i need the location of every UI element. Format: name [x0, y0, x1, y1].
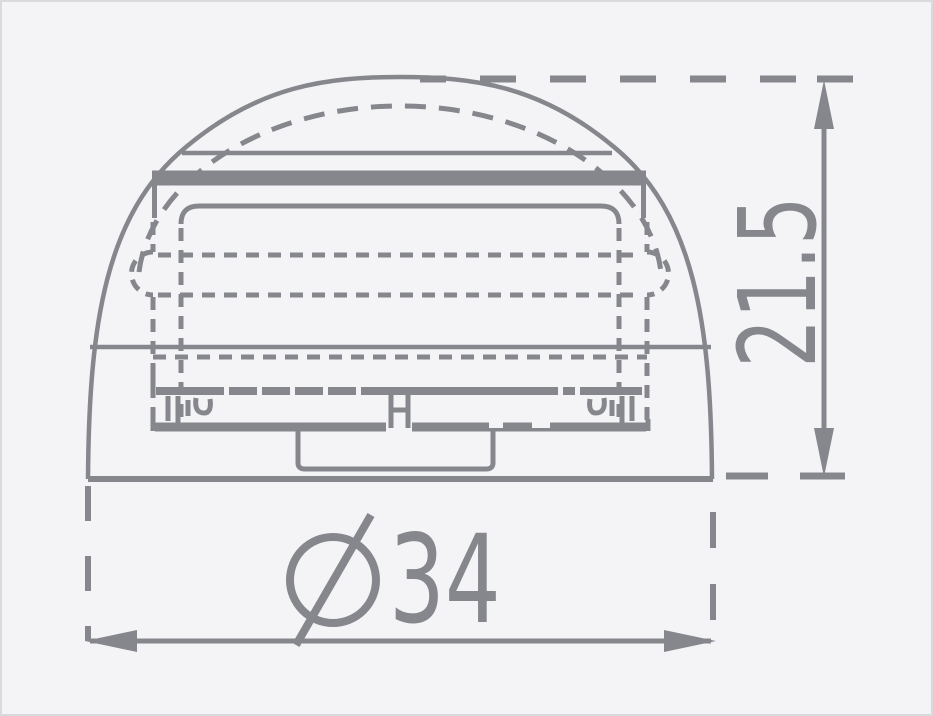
drawing-canvas: 21.5 34 — [0, 0, 933, 716]
diameter-dimension-label: 34 — [389, 510, 501, 652]
arrow-down — [814, 428, 834, 477]
clip-right — [590, 396, 632, 427]
inner-dome-hidden-arc — [139, 106, 661, 272]
arrow-right — [664, 630, 716, 652]
arrow-up — [814, 80, 834, 129]
module-top-edge — [181, 206, 619, 224]
diameter-symbol — [290, 515, 376, 645]
connector-recess — [298, 431, 493, 469]
arrow-left — [85, 630, 137, 652]
internal-module — [152, 153, 646, 224]
clip-left — [168, 396, 210, 427]
height-dimension-label: 21.5 — [715, 196, 840, 368]
technical-drawing: 21.5 34 — [0, 0, 933, 716]
